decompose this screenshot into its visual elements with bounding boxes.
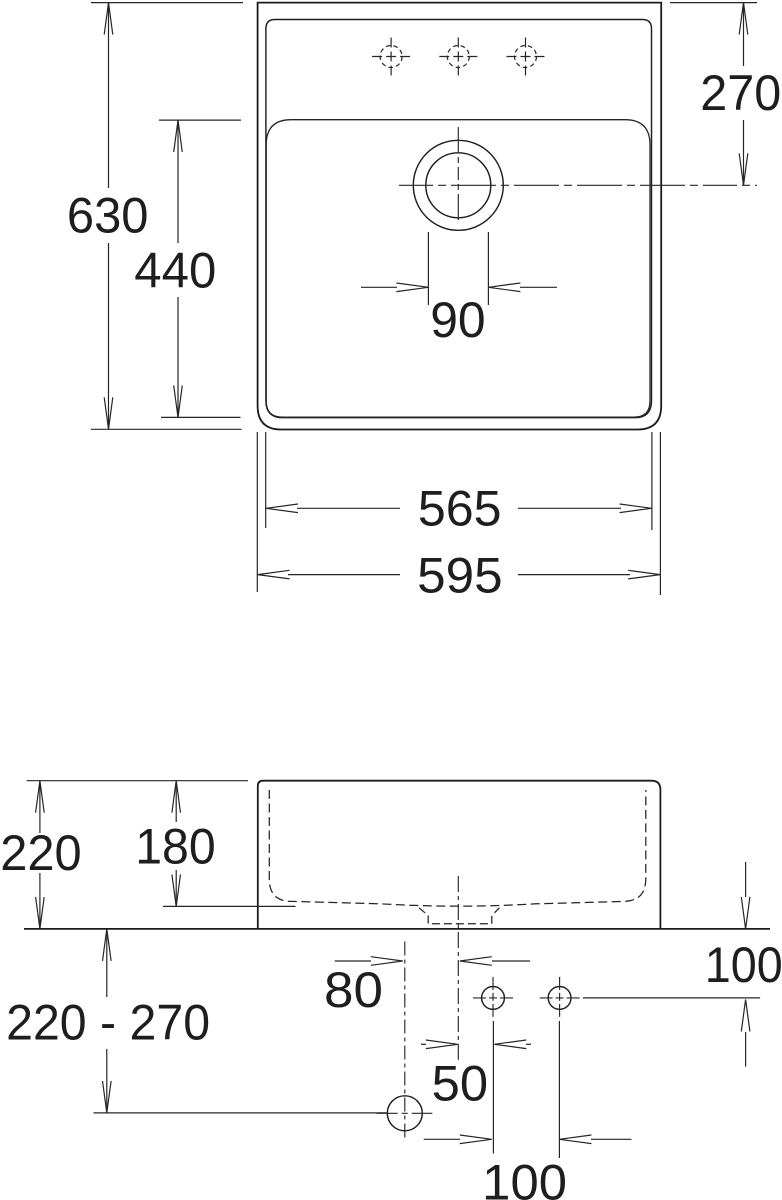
svg-text:220: 220 — [0, 825, 82, 881]
svg-text:100: 100 — [482, 1154, 567, 1200]
svg-text:220 - 270: 220 - 270 — [6, 995, 210, 1051]
svg-text:80: 80 — [324, 962, 383, 1018]
svg-text:180: 180 — [135, 819, 216, 875]
svg-text:50: 50 — [432, 1055, 489, 1111]
svg-text:565: 565 — [418, 481, 502, 537]
svg-text:440: 440 — [134, 243, 216, 299]
svg-text:630: 630 — [67, 188, 149, 244]
svg-text:90: 90 — [430, 292, 486, 348]
svg-text:270: 270 — [700, 65, 781, 121]
svg-text:595: 595 — [417, 548, 503, 604]
svg-text:100: 100 — [705, 937, 782, 993]
